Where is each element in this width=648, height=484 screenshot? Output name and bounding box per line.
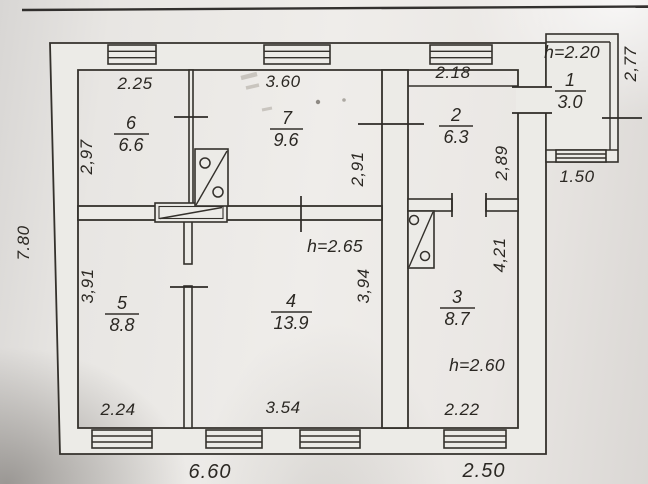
room4-area: 13.9 <box>273 313 308 333</box>
scan-speck <box>342 98 346 102</box>
room3-area: 8.7 <box>444 309 470 329</box>
dim-room3-right: 4,21 <box>490 237 509 272</box>
room2-number: 2 <box>450 105 461 125</box>
door-symbol-room7 <box>195 149 228 206</box>
wall-room2-room3-left <box>408 199 452 211</box>
window-room4-right <box>300 430 360 448</box>
room7-area: 9.6 <box>273 130 299 150</box>
wall-room2-room3-right <box>486 199 518 211</box>
window-room4-left <box>206 430 262 448</box>
room1-area: 3.0 <box>557 92 582 112</box>
window-room2 <box>430 45 492 64</box>
room7-number: 7 <box>282 108 293 128</box>
wall-mid-horizontal <box>78 206 382 220</box>
window-room7 <box>264 45 330 64</box>
wall-room5-room4-upper <box>184 220 192 264</box>
dim-room5-left: 3,91 <box>78 268 97 303</box>
room2-label: 2 6.3 <box>439 105 473 147</box>
room5-label: 5 8.8 <box>105 293 139 335</box>
height-note-room3: h=2.60 <box>449 355 505 375</box>
dim-total-main: 6.60 <box>189 461 232 483</box>
room6-number: 6 <box>126 113 137 133</box>
window-annex <box>556 150 606 162</box>
dim-room2-top: 2.18 <box>434 63 470 82</box>
scanned-floor-plan-sheet: 6 6.6 7 9.6 2 6.3 1 3.0 5 8.8 4 13.9 3 8… <box>0 0 648 484</box>
dim-room2-right: 2,89 <box>492 145 511 181</box>
scan-edge-line <box>22 7 648 11</box>
dim-room6-left: 2,97 <box>77 139 96 175</box>
wall-room6-room7 <box>189 70 193 206</box>
room3-label: 3 8.7 <box>440 287 475 329</box>
dim-annex-bottom: 1.50 <box>559 167 594 186</box>
room1-number: 1 <box>565 70 575 90</box>
dim-annex-right: 2,77 <box>621 46 640 82</box>
room3-number: 3 <box>452 287 462 307</box>
dim-room4-bottom: 3.54 <box>265 398 300 417</box>
doorway-ticks-room2-room3 <box>452 193 486 217</box>
room5-number: 5 <box>117 293 128 313</box>
dim-room3-bottom: 2.22 <box>443 400 479 419</box>
opening-room2-annex <box>516 88 548 113</box>
dim-room5-bottom: 2.24 <box>99 400 135 419</box>
dim-room7-right: 2,91 <box>348 151 367 187</box>
outer-walls <box>50 43 546 454</box>
wall-room5-room4-lower <box>184 286 192 428</box>
room5-area: 8.8 <box>109 315 134 335</box>
dim-room6-top: 2.25 <box>116 74 152 93</box>
floor-plan-drawing: 6 6.6 7 9.6 2 6.3 1 3.0 5 8.8 4 13.9 3 8… <box>0 0 648 484</box>
dim-overall-left: 7.80 <box>14 225 33 260</box>
dim-total-right: 2.50 <box>462 460 506 482</box>
dim-room4-right: 3,94 <box>354 268 373 303</box>
dim-room7-top: 3.60 <box>265 72 300 91</box>
height-note-room4: h=2.65 <box>307 236 363 256</box>
window-room5 <box>92 430 152 448</box>
window-room3 <box>444 430 506 448</box>
room4-label: 4 13.9 <box>271 291 312 333</box>
room6-label: 6 6.6 <box>114 113 149 155</box>
height-note-room1: h=2.20 <box>544 42 600 62</box>
room6-area: 6.6 <box>118 135 144 155</box>
room7-label: 7 9.6 <box>270 108 303 150</box>
door-symbol-room3 <box>408 211 434 268</box>
room4-number: 4 <box>286 291 296 311</box>
scan-speck <box>316 100 320 104</box>
room2-area: 6.3 <box>443 127 468 147</box>
window-room6 <box>108 45 156 64</box>
